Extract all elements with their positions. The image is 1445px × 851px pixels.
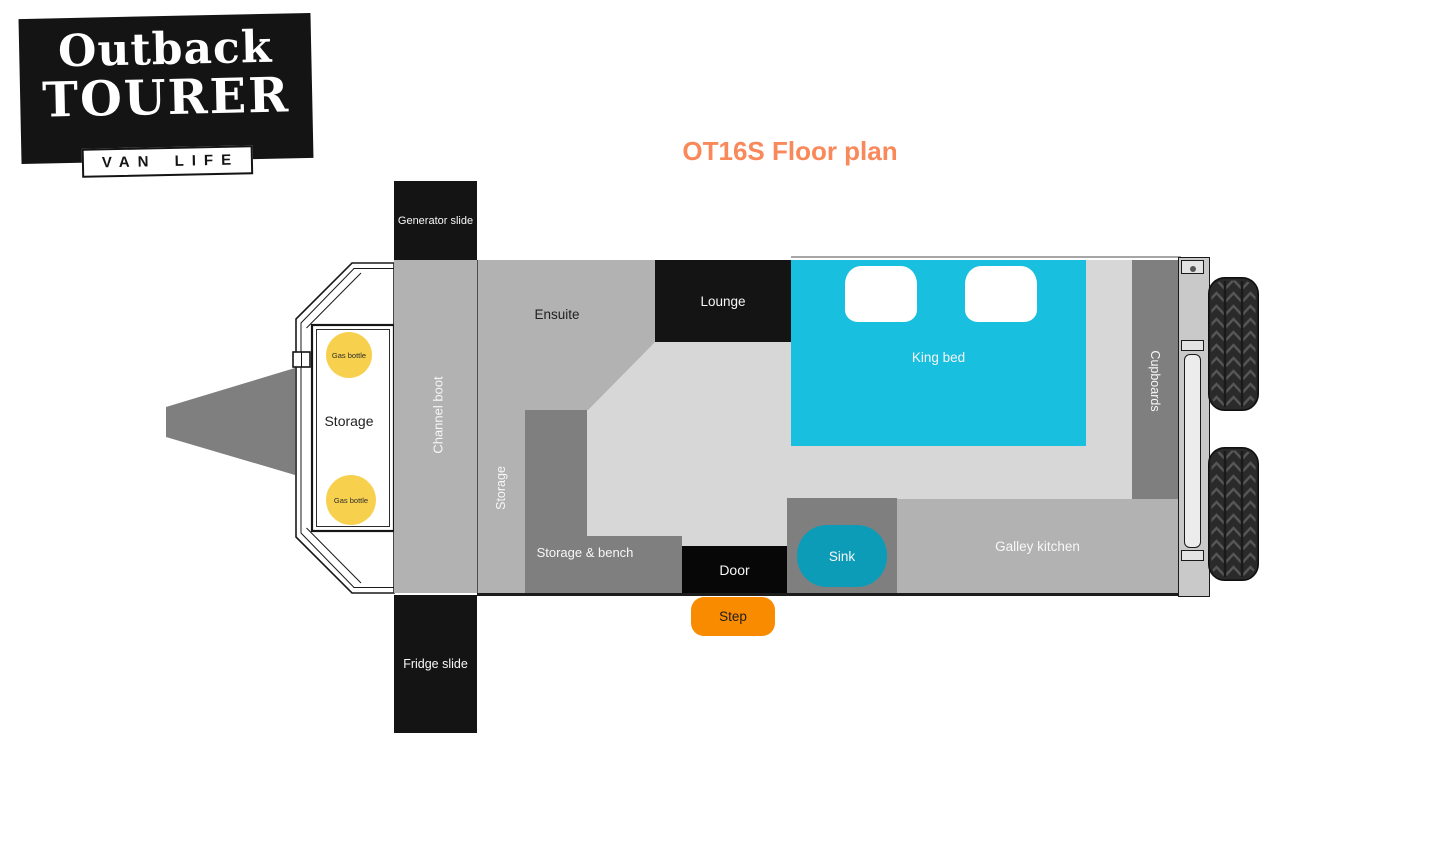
sink-shape: Sink bbox=[797, 525, 887, 587]
region-door: Door bbox=[682, 546, 787, 593]
region-generator-slide: Generator slide bbox=[394, 181, 477, 261]
king-bed-label: King bed bbox=[791, 350, 1086, 365]
door-label: Door bbox=[719, 562, 749, 578]
trailer-rear-wall bbox=[1178, 257, 1210, 597]
channel-boot-label: Channel boot bbox=[431, 376, 446, 453]
region-fridge-slide: Fridge slide bbox=[394, 595, 477, 733]
step-label: Step bbox=[719, 609, 747, 624]
tyre-front bbox=[1208, 277, 1259, 411]
page-title: OT16S Floor plan bbox=[565, 136, 1015, 167]
bottom-wall-line bbox=[477, 593, 1181, 596]
logo-word-tourer: TOURER bbox=[20, 71, 313, 125]
lounge-label: Lounge bbox=[700, 294, 745, 309]
generator-slide-label: Generator slide bbox=[398, 215, 473, 227]
side-storage-label: Storage bbox=[494, 466, 508, 510]
region-step: Step bbox=[691, 597, 775, 636]
rear-wall-bracket-bottom bbox=[1181, 550, 1204, 561]
storage-bench-label: Storage & bench bbox=[515, 545, 655, 560]
cupboards-label: Cupboards bbox=[1148, 350, 1162, 411]
front-storage-label: Storage bbox=[309, 413, 389, 429]
sink-counter: Sink bbox=[787, 498, 897, 593]
pillow bbox=[965, 266, 1037, 322]
rear-wall-hinge-pin bbox=[1190, 266, 1196, 272]
floor-plan-page: Outback TOURER VAN LIFE OT16S Floor plan… bbox=[0, 0, 1445, 851]
gas-bottle-bottom: Gas bottle bbox=[326, 475, 376, 525]
logo-tagline: VAN LIFE bbox=[82, 145, 254, 178]
galley-kitchen-label: Galley kitchen bbox=[995, 539, 1080, 554]
rear-wall-panel bbox=[1184, 354, 1201, 548]
brand-logo: Outback TOURER VAN LIFE bbox=[19, 13, 314, 164]
sink-label: Sink bbox=[829, 549, 855, 564]
pillow bbox=[845, 266, 917, 322]
fridge-slide-label: Fridge slide bbox=[403, 657, 468, 671]
tyre-rear bbox=[1208, 447, 1259, 581]
gas-bottle-top: Gas bottle bbox=[326, 332, 372, 378]
rear-wall-bracket-top bbox=[1181, 340, 1204, 351]
region-galley-kitchen: Galley kitchen bbox=[897, 499, 1178, 593]
ensuite-label: Ensuite bbox=[507, 307, 607, 322]
rear-wall-hinge bbox=[1181, 260, 1204, 274]
drawbar-shape bbox=[166, 368, 295, 475]
region-lounge: Lounge bbox=[655, 260, 791, 342]
trailer-front-cap bbox=[160, 250, 400, 610]
gas-bottle-top-label: Gas bottle bbox=[332, 351, 366, 360]
region-king-bed: King bed bbox=[791, 260, 1086, 446]
top-wall-line bbox=[791, 256, 1181, 258]
gas-bottle-bottom-label: Gas bottle bbox=[334, 496, 368, 505]
